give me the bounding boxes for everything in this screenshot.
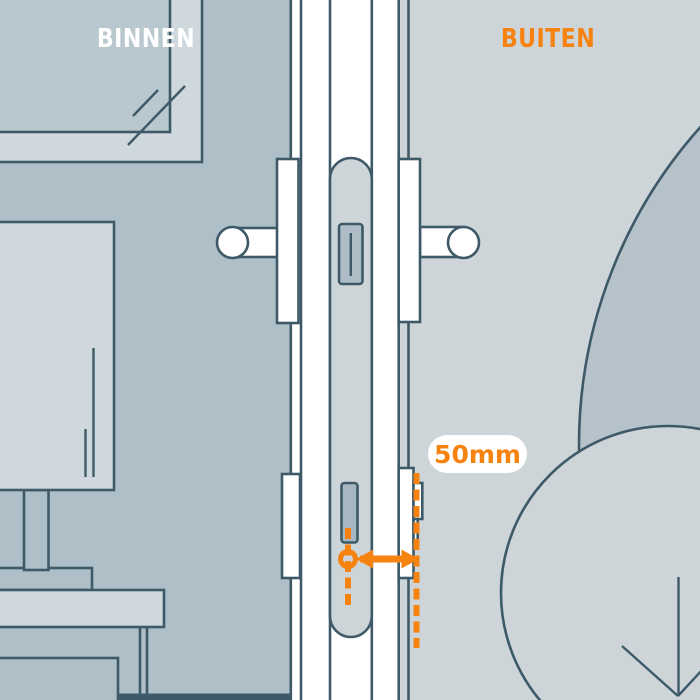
desk-top bbox=[0, 590, 164, 627]
cabinet bbox=[0, 658, 118, 700]
measurement-badge: 50mm bbox=[428, 435, 527, 473]
monitor-stand bbox=[24, 490, 49, 570]
desk-leg bbox=[140, 627, 147, 700]
inside-handle-plate bbox=[277, 159, 299, 323]
inside-handle-knob bbox=[217, 227, 248, 258]
window-glass bbox=[0, 0, 170, 132]
illustration-canvas bbox=[0, 0, 700, 700]
inside-cylinder-plate bbox=[282, 474, 300, 578]
outside-handle-plate bbox=[399, 159, 420, 322]
door-measurement-illustration: BINNEN BUITEN 50mm bbox=[0, 0, 700, 700]
inside-label: BINNEN bbox=[95, 24, 197, 54]
outside-label: BUITEN bbox=[497, 24, 599, 54]
floor-line bbox=[118, 694, 290, 700]
outside-handle-knob bbox=[448, 227, 479, 258]
monitor bbox=[0, 222, 114, 490]
measurement-value: 50mm bbox=[434, 440, 521, 469]
